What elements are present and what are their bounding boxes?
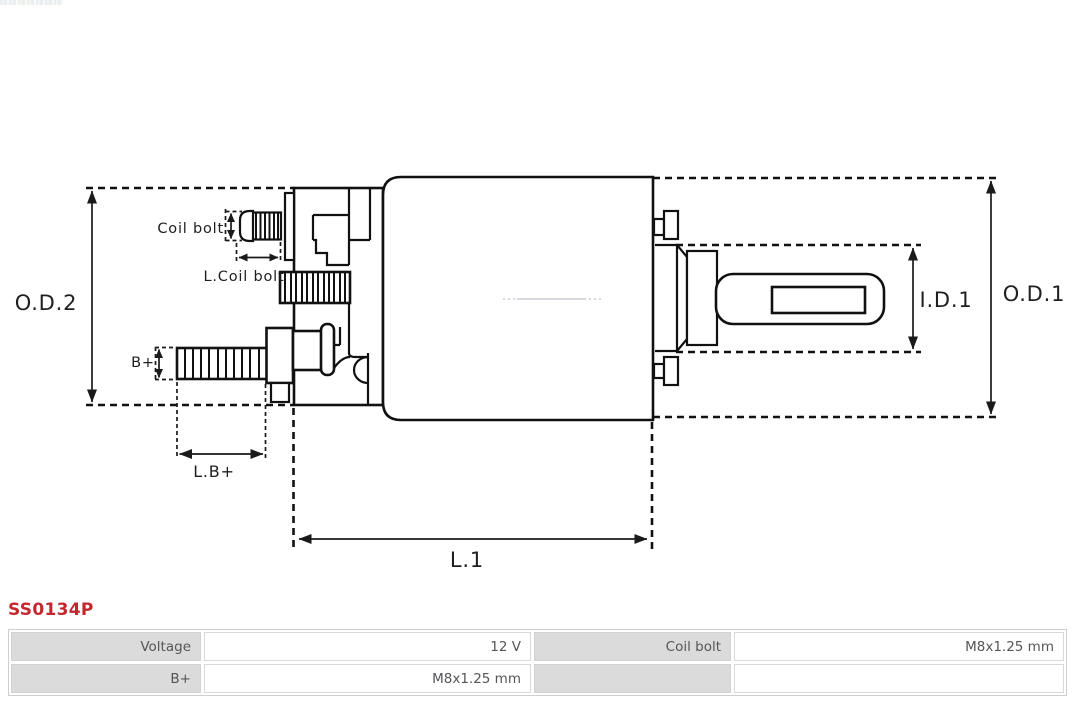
product-drawing-page: O.D.2 O.D.1 I.D.1 L.1 L.B+ B+ Coil bolt … xyxy=(0,0,1080,701)
mounting-tab-bottom xyxy=(654,357,678,385)
plunger-shaft xyxy=(716,274,884,324)
spec-label-cell: Voltage xyxy=(11,632,201,661)
b-plus-bolt xyxy=(177,348,267,379)
dim-label-id1: I.D.1 xyxy=(919,288,972,312)
dim-label-bplus: B+ xyxy=(131,355,155,371)
spec-value-cell: 12 V xyxy=(204,632,531,661)
dim-label-l1: L.1 xyxy=(450,548,484,572)
dim-label-lcoilbolt: L.Coil bolt xyxy=(204,269,285,285)
solenoid-technical-drawing: O.D.2 O.D.1 I.D.1 L.1 L.B+ B+ Coil bolt … xyxy=(0,0,1080,701)
coil-bolt xyxy=(240,193,294,260)
spec-label-cell xyxy=(534,664,731,693)
spec-value-cell: M8x1.25 mm xyxy=(734,632,1064,661)
coil-bolt-thread-bushing xyxy=(280,272,350,303)
dim-label-coilbolt: Coil bolt xyxy=(157,221,224,237)
spec-label-cell: Coil bolt xyxy=(534,632,731,661)
spec-table: Voltage 12 V Coil bolt M8x1.25 mm B+ M8x… xyxy=(8,629,1067,696)
mounting-tab-top xyxy=(654,211,678,239)
dim-label-od2: O.D.2 xyxy=(15,291,78,315)
part-number: SS0134P xyxy=(8,600,94,620)
spec-value-cell xyxy=(734,664,1064,693)
spec-label-cell: B+ xyxy=(11,664,201,693)
dim-label-lbplus: L.B+ xyxy=(193,462,235,481)
plunger-cone xyxy=(655,245,717,351)
shaft-slot xyxy=(772,287,865,313)
dim-label-od1: O.D.1 xyxy=(1003,282,1066,306)
spec-value-cell: M8x1.25 mm xyxy=(204,664,531,693)
